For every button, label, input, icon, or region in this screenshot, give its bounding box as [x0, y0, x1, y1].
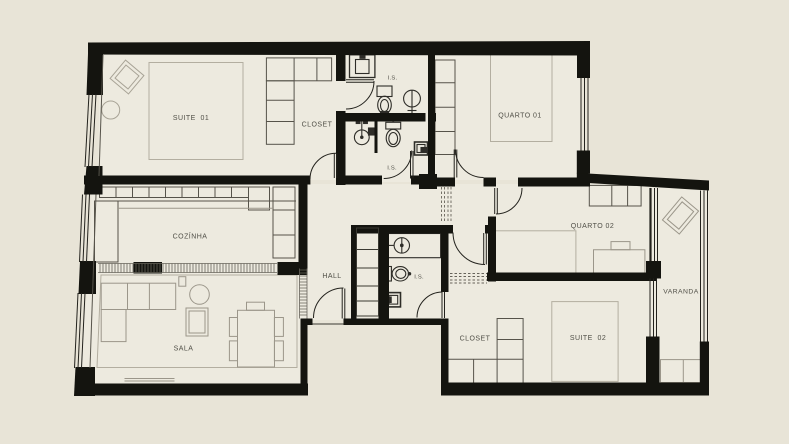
- svg-text:I.S.: I.S.: [388, 76, 398, 82]
- svg-text:SUITE 02: SUITE 02: [570, 335, 606, 342]
- svg-text:COZÍNHA: COZÍNHA: [173, 232, 208, 241]
- svg-text:QUARTO 01: QUARTO 01: [498, 113, 541, 120]
- svg-text:I.S.: I.S.: [414, 275, 424, 281]
- svg-text:QUARTO 02: QUARTO 02: [571, 223, 614, 230]
- svg-text:CLOSET: CLOSET: [460, 336, 491, 343]
- svg-text:SALA: SALA: [174, 346, 194, 353]
- svg-text:VARANDA: VARANDA: [663, 289, 699, 296]
- svg-text:HALL: HALL: [322, 273, 341, 280]
- svg-text:CLOSET: CLOSET: [302, 122, 333, 129]
- svg-text:SUITE 01: SUITE 01: [173, 115, 209, 122]
- svg-text:I.S.: I.S.: [387, 166, 397, 172]
